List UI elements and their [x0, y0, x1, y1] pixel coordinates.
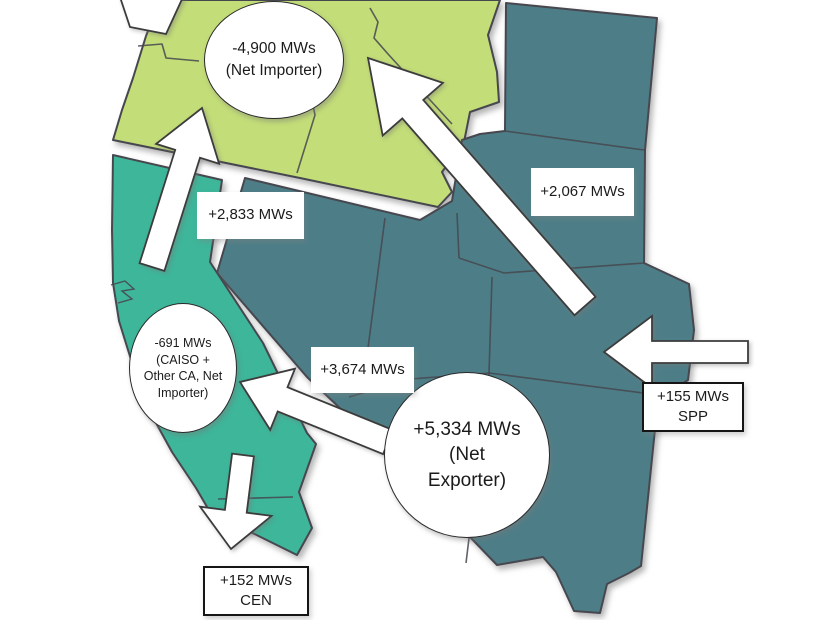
badge-california: -691 MWs (CAISO + Other CA, Net Importer… [129, 303, 237, 433]
badge-california-line: -691 MWs [155, 335, 212, 352]
flow-label-cen: +152 MWs CEN [203, 566, 309, 616]
power-flow-map: -4,900 MWs (Net Importer) -691 MWs (CAIS… [0, 0, 826, 620]
flow-label-spp: +155 MWs SPP [642, 382, 744, 432]
flow-label-text: +155 MWs [657, 387, 729, 407]
flow-label-text: CEN [240, 591, 272, 611]
badge-interior-west-line: +5,334 MWs [413, 417, 520, 442]
flow-label-text: +152 MWs [220, 571, 292, 591]
badge-northwest: -4,900 MWs (Net Importer) [204, 1, 344, 119]
badge-interior-west: +5,334 MWs (Net Exporter) [384, 372, 550, 538]
badge-interior-west-line: Exporter) [428, 468, 506, 493]
badge-northwest-line: -4,900 MWs [232, 38, 316, 60]
flow-label-text: +2,067 MWs [540, 182, 625, 202]
badge-california-line: Importer) [158, 385, 209, 402]
flow-label-california-to-northwest: +2,833 MWs [197, 192, 304, 239]
flow-label-text: SPP [678, 407, 708, 427]
badge-california-line: (CAISO + [156, 352, 210, 369]
flow-label-interior-to-northwest: +2,067 MWs [531, 168, 634, 216]
flow-label-text: +3,674 MWs [320, 360, 405, 380]
flow-label-interior-to-california: +3,674 MWs [311, 347, 414, 393]
badge-california-line: Other CA, Net [144, 368, 223, 385]
badge-interior-west-line: (Net [449, 442, 485, 467]
flow-label-text: +2,833 MWs [208, 205, 293, 225]
map-svg [0, 0, 826, 620]
badge-northwest-line: (Net Importer) [226, 60, 322, 82]
